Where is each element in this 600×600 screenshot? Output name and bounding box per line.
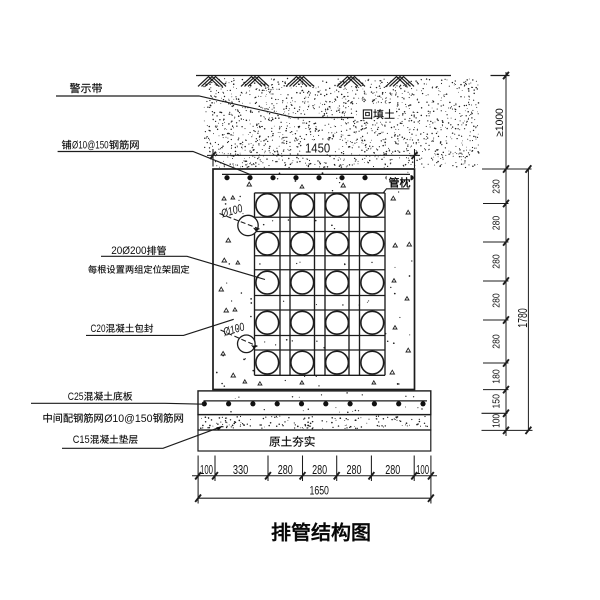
svg-text:280: 280	[490, 254, 502, 269]
svg-text:Ø10@150: Ø10@150	[72, 140, 109, 152]
svg-text:C15: C15	[73, 434, 90, 446]
svg-text:280: 280	[312, 462, 327, 477]
svg-text:180: 180	[490, 369, 502, 384]
svg-text:150: 150	[490, 394, 502, 409]
svg-text:230: 230	[490, 179, 502, 194]
svg-text:C25: C25	[68, 391, 84, 403]
svg-text:330: 330	[233, 462, 248, 477]
svg-text:1650: 1650	[309, 483, 329, 497]
svg-text:100: 100	[490, 414, 502, 428]
svg-text:280: 280	[278, 462, 293, 477]
svg-text:280: 280	[490, 216, 502, 231]
svg-text:280: 280	[490, 334, 502, 349]
svg-text:1450: 1450	[305, 141, 330, 156]
svg-text:100: 100	[416, 462, 429, 477]
svg-text:1780: 1780	[515, 308, 530, 328]
svg-text:280: 280	[490, 293, 502, 308]
svg-text:C20: C20	[91, 323, 106, 335]
svg-text:20Ø200: 20Ø200	[111, 245, 146, 257]
svg-text:≥1000: ≥1000	[494, 108, 506, 137]
svg-text:Ø10@150: Ø10@150	[104, 413, 152, 425]
svg-text:280: 280	[385, 462, 400, 477]
svg-text:100: 100	[200, 462, 213, 477]
svg-text:280: 280	[347, 462, 362, 477]
